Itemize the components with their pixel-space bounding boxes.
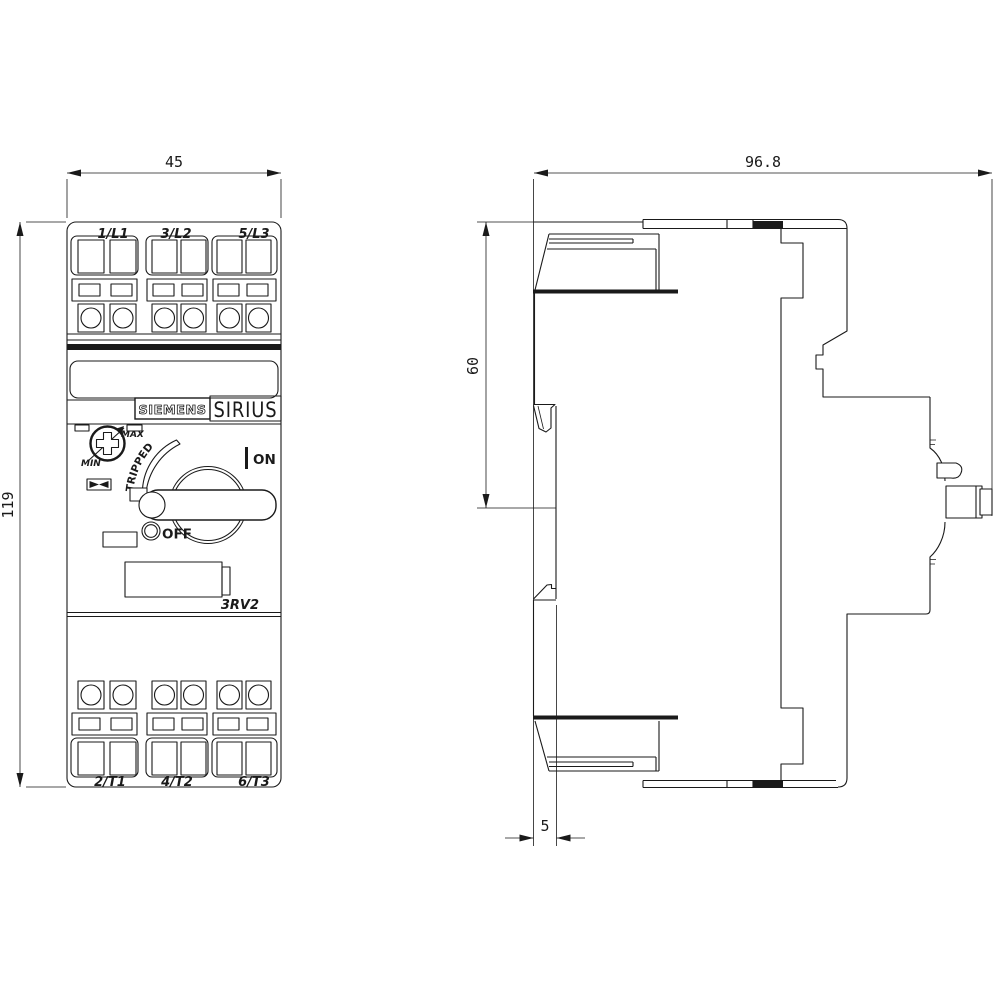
slot-group-outline <box>72 713 137 735</box>
screw-icon <box>249 685 269 705</box>
lower-divider-lines <box>67 613 281 617</box>
terminal-opening <box>181 240 206 273</box>
screw-icon <box>113 685 133 705</box>
nameplate-tab <box>222 567 230 595</box>
technical-drawing: 45 119 1/L1 3/L2 5/L3 <box>0 0 1000 1000</box>
extension-lines <box>67 179 281 218</box>
slot-group-outline <box>147 713 207 735</box>
slot <box>153 718 174 730</box>
side-top-terminal-cover <box>533 234 678 294</box>
slot <box>218 718 239 730</box>
siemens-logo: SIEMENS <box>139 402 207 417</box>
side-right-profile <box>816 220 945 788</box>
terminal-label-6T3: 6/T3 <box>238 775 270 790</box>
face-serration-ticks <box>930 440 936 564</box>
cover-slant-edge <box>535 721 549 771</box>
off-label: OFF <box>162 527 192 543</box>
cover-edges <box>549 234 659 290</box>
terminal-opening <box>246 240 271 273</box>
dark-band <box>67 344 281 350</box>
bottom-plate-ticks <box>643 781 753 788</box>
dimension-side-depth: 96.8 <box>534 153 993 846</box>
slot <box>247 718 268 730</box>
arrowhead-left-icon <box>557 835 571 842</box>
dimension-front-width: 45 <box>67 153 281 218</box>
side-bottom-edge <box>643 781 838 788</box>
terminal-group-outline <box>212 738 277 777</box>
off-position-marker: OFF <box>142 522 192 543</box>
cover-base-bar <box>533 290 678 294</box>
arrowhead-up-icon <box>483 222 490 236</box>
terminal-opening <box>110 240 136 273</box>
front-mid-bands <box>67 334 281 398</box>
dial-max-label: MAX <box>121 430 145 440</box>
screw-icon <box>220 685 240 705</box>
housing-seam-line <box>781 229 803 781</box>
side-bottom-terminal-cover <box>533 716 678 772</box>
handle-pivot <box>139 492 165 518</box>
screw-icon <box>81 308 101 328</box>
slot <box>182 284 203 296</box>
bottom-plate-lines <box>643 781 838 788</box>
terminal-opening <box>181 742 206 775</box>
slot-group-outline <box>213 279 276 301</box>
terminal-opening <box>152 240 177 273</box>
dim-text-60: 60 <box>464 357 482 375</box>
slot <box>79 718 100 730</box>
slot-group-outline <box>147 279 207 301</box>
side-view: 96.8 60 5 <box>464 153 992 846</box>
cover-layer-lines <box>547 757 656 767</box>
marking-field <box>103 532 137 547</box>
handle-knob <box>946 486 982 518</box>
cover-edges <box>549 721 659 771</box>
dim-text-96-8: 96.8 <box>745 153 781 171</box>
screw-terminals <box>78 304 271 332</box>
rail-claw-bottom <box>534 585 557 601</box>
slot <box>182 718 203 730</box>
test-symbol <box>87 479 111 490</box>
screw-icon <box>220 308 240 328</box>
arrowhead-left-icon <box>534 170 548 177</box>
on-label: ON <box>253 452 276 468</box>
top-plate-dark-segment <box>753 221 783 228</box>
dimension-drawing-page: 45 119 1/L1 3/L2 5/L3 <box>0 0 1000 1000</box>
extension-lines <box>534 179 993 846</box>
extension-lines <box>26 222 66 787</box>
sirius-label: SIRIUS <box>214 398 278 422</box>
front-bottom-terminal-block <box>71 681 277 777</box>
arrowhead-down-icon <box>483 494 490 508</box>
screw-icon <box>184 308 204 328</box>
screw-icon <box>249 308 269 328</box>
dimension-front-height: 119 <box>0 222 66 787</box>
arrowhead-right-icon <box>978 170 992 177</box>
terminal-opening <box>78 742 104 775</box>
bottom-plate-dark-segment <box>753 781 783 787</box>
side-top-edge <box>534 220 847 229</box>
arrowhead-down-icon <box>17 773 24 787</box>
slot-group-outline <box>72 279 137 301</box>
upper-right-outline <box>816 220 930 398</box>
screw-icon <box>81 685 101 705</box>
brand-row: SIEMENS SIRIUS <box>67 396 281 424</box>
terminal-opening <box>110 742 136 775</box>
terminal-label-4T2: 4/T2 <box>160 775 193 790</box>
front-face-lower <box>838 522 945 787</box>
arrowhead-left-icon <box>67 170 81 177</box>
dim-text-5: 5 <box>540 817 549 835</box>
slot-group-outline <box>213 713 276 735</box>
dim-text-119: 119 <box>0 491 17 518</box>
nameplate: 3RV2 <box>125 562 259 613</box>
slot <box>79 284 100 296</box>
marker-notch <box>75 425 89 431</box>
dimension-side-height: 60 <box>464 222 556 508</box>
arrowhead-right-icon <box>520 835 534 842</box>
slot <box>111 718 132 730</box>
slot <box>247 284 268 296</box>
arrowhead-up-icon <box>17 222 24 236</box>
nameplate-window <box>125 562 222 597</box>
terminal-label-2T1: 2/T1 <box>94 775 126 790</box>
front-view: 45 119 1/L1 3/L2 5/L3 <box>0 153 281 790</box>
terminal-opening <box>152 742 177 775</box>
model-label: 3RV2 <box>221 598 259 613</box>
screw-terminals <box>78 681 271 709</box>
slot <box>111 284 132 296</box>
side-rotary-handle <box>937 463 992 518</box>
cover-base-bar <box>533 716 678 720</box>
rail-claw-top <box>534 405 556 433</box>
top-plate-ticks <box>643 220 753 229</box>
top-plate-lines <box>643 220 847 229</box>
off-ring-inner <box>145 525 158 538</box>
dial-min-label: MIN <box>81 459 101 469</box>
terminal-opening <box>78 240 104 273</box>
cover-slant-edge <box>535 234 549 290</box>
on-position-marker: ON <box>245 447 276 469</box>
dim-text-45: 45 <box>165 153 183 171</box>
cover-layer-lines <box>547 239 656 249</box>
slot <box>218 284 239 296</box>
terminal-opening <box>217 742 242 775</box>
label-window <box>70 361 278 398</box>
front-top-terminal-block <box>71 236 277 332</box>
slot <box>153 284 174 296</box>
bowtie-icon <box>90 481 100 488</box>
screw-icon <box>113 308 133 328</box>
extension-lines <box>477 222 556 508</box>
arrowhead-right-icon <box>267 170 281 177</box>
dimension-rail-offset: 5 <box>505 605 585 846</box>
on-position-bar <box>245 447 248 469</box>
screw-icon <box>155 685 175 705</box>
screw-icon <box>184 685 204 705</box>
terminal-opening <box>246 742 271 775</box>
terminal-opening <box>217 240 242 273</box>
handle-tab <box>937 463 962 478</box>
bowtie-icon <box>99 481 109 488</box>
side-rail-area <box>534 294 557 717</box>
tripped-indicator: TRIPPED <box>124 440 180 493</box>
handle-knob-tip <box>980 489 992 515</box>
screw-icon <box>155 308 175 328</box>
